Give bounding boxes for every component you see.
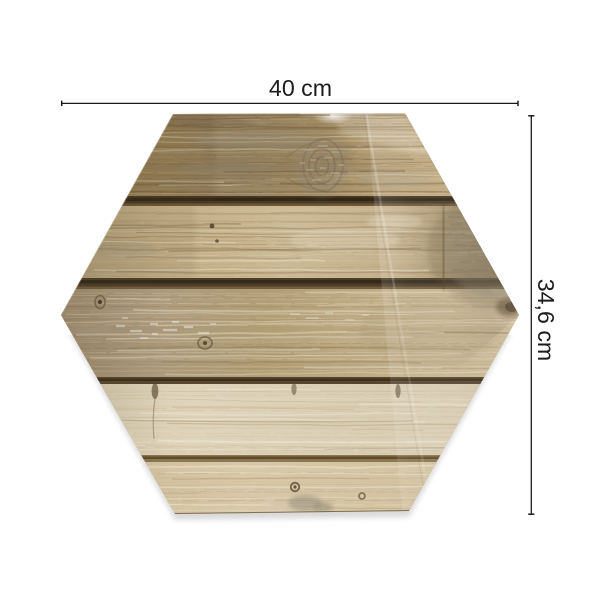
svg-text:40 cm: 40 cm <box>269 75 332 101</box>
svg-text:34,6 cm: 34,6 cm <box>533 279 559 361</box>
